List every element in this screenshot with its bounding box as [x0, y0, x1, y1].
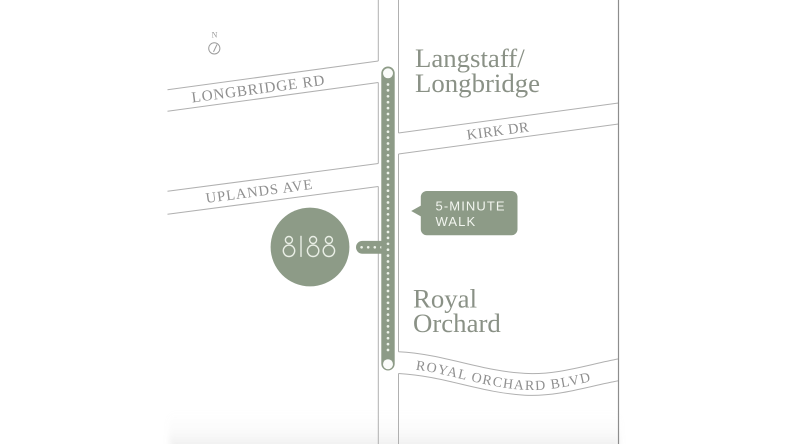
svg-text:N: N: [212, 31, 218, 40]
svg-text:Orchard: Orchard: [413, 308, 501, 338]
svg-text:5-MINUTE: 5-MINUTE: [436, 198, 506, 213]
svg-text:Longbridge: Longbridge: [415, 68, 540, 98]
svg-text:WALK: WALK: [436, 214, 477, 229]
svg-text:ROYAL ORCHARD BLVD: ROYAL ORCHARD BLVD: [415, 359, 593, 394]
